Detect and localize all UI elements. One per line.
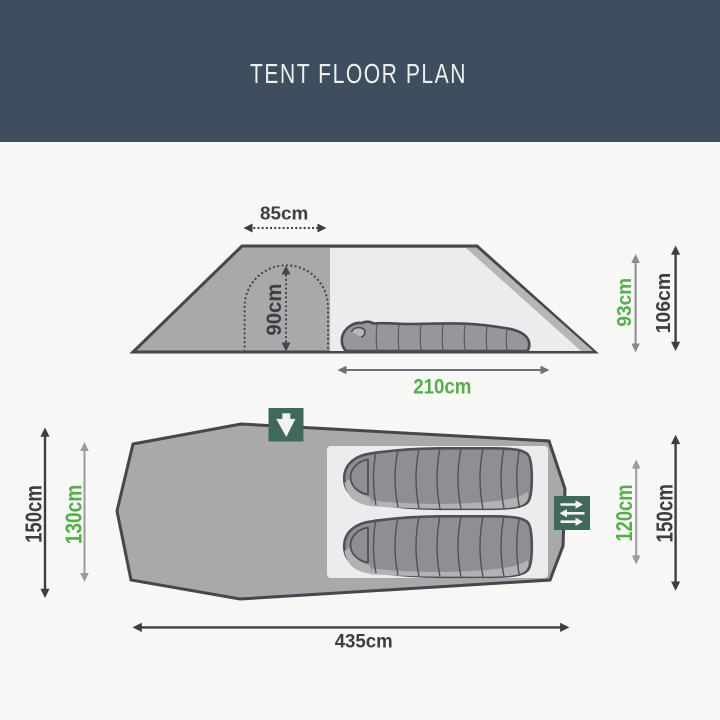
svg-text:85cm: 85cm	[260, 203, 308, 224]
svg-text:130cm: 130cm	[61, 485, 87, 545]
svg-text:120cm: 120cm	[611, 485, 637, 542]
svg-text:90cm: 90cm	[263, 284, 286, 336]
svg-text:93cm: 93cm	[614, 278, 636, 327]
svg-text:150cm: 150cm	[20, 485, 46, 543]
svg-text:210cm: 210cm	[413, 375, 471, 398]
svg-text:TENT FLOOR PLAN: TENT FLOOR PLAN	[250, 58, 467, 89]
svg-text:150cm: 150cm	[652, 484, 678, 543]
svg-text:435cm: 435cm	[335, 632, 393, 653]
svg-text:106cm: 106cm	[653, 273, 675, 334]
